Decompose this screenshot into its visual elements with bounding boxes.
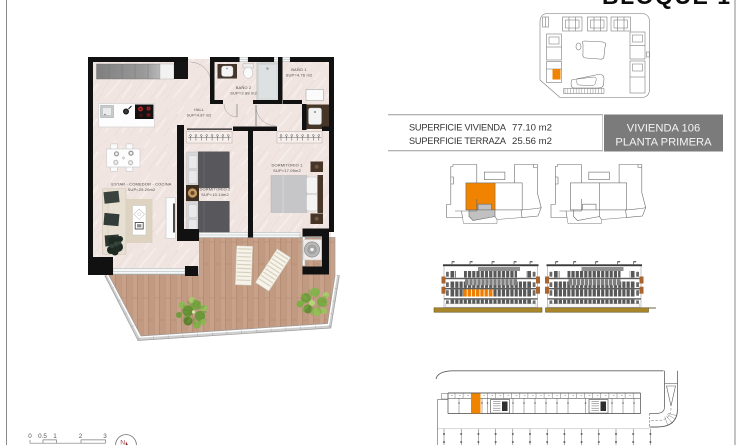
svg-text:SUP=17.05m2: SUP=17.05m2 <box>273 168 301 173</box>
svg-text:SUPERFICIE VIVIENDA: SUPERFICIE VIVIENDA <box>409 123 507 133</box>
svg-text:HALL: HALL <box>194 108 204 112</box>
svg-text:0: 0 <box>28 433 32 440</box>
svg-text:SUPERFICIE TERRAZA: SUPERFICIE TERRAZA <box>409 136 507 146</box>
svg-text:2: 2 <box>79 433 83 440</box>
svg-text:ESTAR - COMEDOR - COCINA: ESTAR - COMEDOR - COCINA <box>111 182 171 187</box>
svg-text:3: 3 <box>103 433 107 440</box>
svg-text:SUP=3.88 m2: SUP=3.88 m2 <box>230 91 257 96</box>
svg-text:N: N <box>120 440 125 445</box>
svg-text:BAÑO 1: BAÑO 1 <box>291 67 307 72</box>
svg-text:25.56 m2: 25.56 m2 <box>512 136 552 147</box>
svg-text:SUP=10.14m2: SUP=10.14m2 <box>201 192 229 197</box>
svg-text:BLOQUE 1: BLOQUE 1 <box>602 0 732 9</box>
svg-text:77.10 m2: 77.10 m2 <box>512 123 552 134</box>
svg-text:BAÑO 2: BAÑO 2 <box>236 85 252 90</box>
svg-text:PLANTA PRIMERA: PLANTA PRIMERA <box>615 137 712 149</box>
svg-text:SUP=4.87 m2: SUP=4.87 m2 <box>187 114 212 118</box>
svg-text:0.5: 0.5 <box>38 433 47 440</box>
svg-text:SUP=4.76 m2: SUP=4.76 m2 <box>286 73 313 78</box>
svg-text:1: 1 <box>53 433 57 440</box>
svg-text:DORMITORIO 1: DORMITORIO 1 <box>271 163 303 168</box>
svg-text:VIVIENDA 106: VIVIENDA 106 <box>627 123 700 135</box>
svg-text:SUP=29.20m2: SUP=29.20m2 <box>128 187 156 192</box>
svg-text:DORMITORIO 2: DORMITORIO 2 <box>199 187 231 192</box>
